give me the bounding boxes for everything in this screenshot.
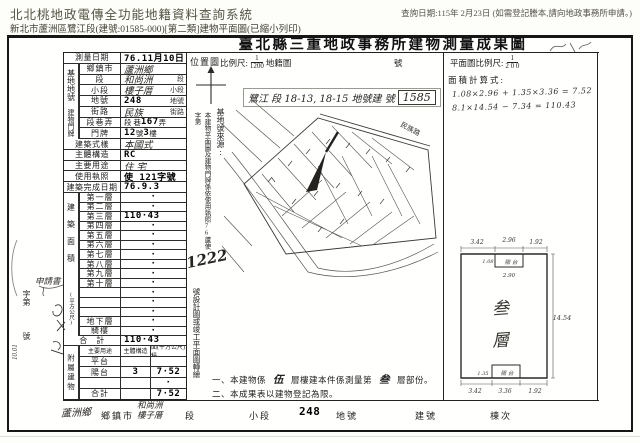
row-label: 小段 (79, 85, 121, 95)
table-row: 小段樓子厝小段 (64, 85, 186, 96)
table-row: · (64, 298, 186, 308)
footer-unit-label: 棟次 (490, 409, 512, 422)
derivation-note: 本建物平面圖及建物門牌係依使用執照76蘆使字第 (191, 112, 211, 252)
value-text: · (151, 241, 157, 250)
row-label: 第一層 (79, 193, 121, 202)
row-value: · (121, 269, 186, 278)
annex-use-cell: 陽台 (79, 367, 121, 377)
row-label: 第六層 (79, 241, 121, 250)
survey-result-title: 臺北縣三重地政事務所建物測量成果圖 (209, 37, 557, 52)
value-text: 段 巷 (124, 118, 141, 128)
sheet-number-label: 號 (394, 57, 403, 69)
row-label: 第九層 (79, 269, 121, 278)
dim-top-left: 3.42 (470, 239, 484, 246)
value-text: RC (124, 150, 136, 160)
document-subtitle: 新北市蘆洲區鷺江段(建號:01585-000)[第二類]建物平面圖(已縮小列印) (10, 21, 301, 35)
value-text: 使 121字號 (124, 171, 176, 181)
table-row: · (64, 288, 186, 298)
row-value: RC (121, 150, 186, 160)
row-value: · (121, 260, 186, 269)
value-text: 和尚洲 (124, 75, 153, 85)
table-row: 第八層· (64, 260, 186, 270)
row-value: · (121, 327, 186, 336)
query-date-note: 查詢日期:115年 2月23日 (如需登記謄本,請向地政事務所申請。) (401, 7, 632, 19)
row-value: · (121, 193, 186, 202)
annex-area-cell: · (151, 378, 186, 388)
row-value: 民族街路 (121, 107, 186, 117)
floors-total-stamp: 伍 (273, 374, 284, 386)
unit-suffix: 小段 (170, 85, 186, 95)
annex-header-cell: 主要用途 (79, 346, 121, 356)
value-text: · (151, 250, 157, 259)
annex-row: 平台 (64, 357, 186, 368)
annex-row: 陽台37·52 (64, 367, 186, 378)
row-label: 段巷弄 (79, 118, 121, 128)
row-label: 第五層 (79, 231, 121, 240)
row-value: 110·43 (121, 336, 186, 345)
table-row: 第五層· (64, 231, 186, 241)
annex-area-cell: 7·52 (151, 389, 186, 399)
value-text: · (151, 260, 157, 269)
mid-right-divider (443, 52, 444, 400)
value-text: 3 (133, 367, 139, 377)
row-label: 主要用途 (64, 161, 121, 171)
annex-structure-cell (121, 357, 151, 367)
value-text: 住 宅 (124, 161, 146, 171)
table-row: 第七層· (64, 250, 186, 260)
floor-label-char2: 層 (491, 330, 511, 351)
row-value: · (121, 250, 186, 259)
table-row: 地下層· (64, 317, 186, 327)
value-text: 248 (124, 96, 142, 106)
table-row: 測量日期76.11月10日 (64, 53, 186, 64)
annex-row: 合計7·52 (64, 389, 186, 400)
plan-scale-fraction: 1 2 0 0 (505, 55, 519, 70)
row-label: 街路 (79, 107, 121, 117)
dim-top-right: 1.92 (529, 239, 543, 246)
value-text: 110·43 (124, 336, 160, 345)
annex-row: · (64, 378, 186, 389)
group-label-door: 建物門牌 (64, 107, 79, 139)
row-value: · (121, 317, 186, 326)
row-label: 第七層 (79, 250, 121, 259)
value-text: 號 (136, 128, 144, 138)
balcony-bottom-label: 陽 台 (501, 370, 514, 377)
margin-curve-mark (9, 238, 19, 298)
row-label: 主體構造 (64, 150, 121, 160)
value-text: · (151, 193, 157, 202)
row-value: 本國式 (121, 139, 186, 149)
row-value: 248地號 (121, 96, 186, 106)
value-text: 110·43 (124, 212, 160, 221)
table-row: 第十層· (64, 279, 186, 289)
value-text: · (151, 279, 157, 288)
footer-township-value: 蘆洲鄉 (61, 403, 92, 420)
table-row: 鄉鎮市蘆洲鄉 (64, 64, 186, 75)
value-text: 7·52 (157, 389, 181, 399)
note-2: 二、本成果表以建物登記為限。 (212, 388, 338, 400)
table-row: 合 計110·43 (64, 336, 186, 346)
dim-bot-right: 1.92 (528, 388, 542, 395)
value-text: · (151, 288, 157, 297)
row-value: 住 宅 (121, 161, 186, 171)
table-row: · (64, 308, 186, 318)
row-label: 地下層 (79, 317, 121, 326)
row-value: 使 121字號 (121, 171, 186, 181)
group-label-site: 基地地號 (64, 64, 79, 107)
dim-notch-height: 1.08 (482, 259, 493, 265)
dim-top-mid: 2.96 (501, 237, 516, 244)
table-row: 第九層· (64, 269, 186, 279)
area-calc-line-1: 1.08×2.96 + 1.35×3.36 = 7.52 (452, 86, 592, 99)
row-value: · (121, 298, 186, 307)
annex-structure-cell: 3 (121, 367, 151, 377)
scale-fraction: 1 1200 (250, 55, 264, 70)
dim-notch-width: 2.90 (502, 273, 516, 279)
map-scale: 比例尺: 1 1200 地籍圖 (220, 55, 291, 70)
row-label: 鄉鎮市 (79, 64, 121, 74)
value-text: 12 (124, 128, 136, 138)
row-value: 76.9.3 (121, 182, 186, 192)
footer-section-value: 和尚洲 樓子厝 (137, 402, 163, 421)
rotated-margin-note: 10.01 (11, 344, 19, 360)
row-value: · (121, 241, 186, 250)
row-value: · (121, 231, 186, 240)
row-value: · (121, 203, 186, 212)
table-row: 建築完成日期76.9.3 (64, 182, 186, 193)
plan-scale: 平面圖比例尺: 1 2 0 0 (450, 55, 521, 70)
value-text: 本國式 (124, 139, 153, 149)
value-text: 76.9.3 (124, 182, 160, 192)
row-label: 段 (79, 75, 121, 85)
value-text: 7·52 (157, 367, 181, 377)
table-row: 主體構造RC (64, 150, 186, 161)
row-value: 和尚洲段 (121, 75, 186, 85)
floor-label-char1: 叁 (491, 298, 511, 319)
footer-parcel-label: 地號 (336, 409, 358, 422)
row-label: 建築式樣 (64, 139, 121, 149)
dim-bot-mid: 3.36 (498, 388, 512, 395)
row-value: · (121, 288, 186, 297)
annex-use-cell (79, 378, 121, 388)
row-value: · (121, 279, 186, 288)
unit-suffix: 街路 (170, 107, 186, 117)
value-text: · (151, 231, 157, 240)
footer-section-label: 段 (185, 409, 196, 422)
document-scan: 臺北縣三重地政事務所建物測量成果圖 測量日期76.11月10日鄉鎮市蘆洲鄉段和尚… (7, 35, 633, 432)
row-label: 騎樓 (79, 327, 121, 336)
table-row: 第三層110·43 (64, 212, 186, 222)
annex-use-cell: 合計 (79, 389, 121, 399)
dim-bot-notch: 1.35 (477, 371, 488, 377)
value-text: 樓子厝 (124, 85, 153, 95)
row-value: · (121, 308, 186, 317)
row-value: 樓子厝小段 (121, 85, 186, 95)
footer-building-label: 建號 (415, 409, 437, 422)
dim-bot-left: 3.42 (468, 388, 482, 395)
value-text: · (151, 317, 157, 326)
row-value: 段 巷167弄 (121, 118, 186, 128)
table-row: 主要用途住 宅 (64, 161, 186, 172)
row-label: 第八層 (79, 260, 121, 269)
floor-plan-drawing: 3.42 2.96 1.92 1.08 2.90 陽 台 14.54 1.35 … (447, 228, 599, 400)
row-label: 地號 (79, 96, 121, 106)
annex-use-cell: 平台 (79, 357, 121, 367)
footer-township-label: 鄉鎮市 (101, 409, 134, 422)
road-name-label: 民族路 (399, 120, 422, 138)
row-label (79, 308, 121, 317)
margin-scribbles (29, 284, 79, 364)
annex-area-cell: 7·52 (151, 367, 186, 377)
building-info-table: 測量日期76.11月10日鄉鎮市蘆洲鄉段和尚洲段小段樓子厝小段地號248地號街路… (63, 52, 187, 400)
row-value: 蘆洲鄉 (121, 64, 186, 74)
table-row: 地號248地號 (64, 96, 186, 107)
table-row: 第四層· (64, 222, 186, 232)
unit-suffix: 地號 (170, 96, 186, 106)
footer-subsection-label: 小段 (249, 409, 271, 422)
value-text: 167 (141, 118, 159, 128)
annex-structure-cell (121, 378, 151, 388)
dim-right: 14.54 (553, 314, 572, 322)
land-registry-query-screen: { "colors": {"paper":"#ffffff","ink":"#1… (0, 0, 640, 443)
hao-label: 號 (21, 332, 32, 340)
value-text: 蘆洲鄉 (124, 64, 153, 74)
row-label: 第三層 (79, 212, 121, 221)
row-label: 第十層 (79, 279, 121, 288)
note-1: 一、本建物係伍層樓建本件係測量第叁層部份。 (212, 372, 433, 387)
row-label: 測量日期 (64, 53, 121, 63)
unit-suffix: 段 (177, 75, 186, 85)
zidi-label: 字第 (21, 290, 32, 306)
row-value: · (121, 222, 186, 231)
value-text: 樓 (149, 128, 157, 138)
row-label: 使用執照 (64, 171, 121, 181)
row-label (79, 298, 121, 307)
row-value: 110·43 (121, 212, 186, 221)
value-text: · (151, 327, 157, 336)
value-text: · (151, 203, 157, 212)
table-row: 騎樓· (64, 327, 186, 337)
value-text: 弄 (159, 118, 167, 128)
surveyed-floor-stamp: 叁 (379, 374, 390, 386)
row-label: 第四層 (79, 222, 121, 231)
row-label: 第二層 (79, 203, 121, 212)
value-text: · (151, 298, 157, 307)
annex-structure-cell (121, 389, 151, 399)
table-row: 建築式樣本國式 (64, 139, 186, 150)
footer-parcel-value: 248 (299, 405, 320, 418)
table-row: 段和尚洲段 (64, 75, 186, 86)
area-calc-label: 面積計算式: (448, 74, 505, 86)
row-value: 12號 3 樓 (121, 128, 186, 138)
row-value: 76.11月10日 (121, 53, 186, 63)
area-calc-line-2: 8.1×14.54 − 7.34 = 110.43 (452, 100, 576, 112)
cadastral-map-sketch: 民族路 (222, 96, 442, 294)
balcony-top-label: 陽 台 (505, 259, 518, 266)
table-row: 使用執照使 121字號 (64, 171, 186, 182)
value-text: · (151, 222, 157, 231)
table-row: 第六層· (64, 241, 186, 251)
value-text: 民族 (124, 107, 143, 117)
annex-header-row: 主要用途主體構造面(平方公尺)積 (64, 346, 186, 357)
value-text: 76.11月10日 (124, 53, 184, 63)
annex-header-cell: 主體構造 (121, 346, 151, 356)
table-row: 門牌12號 3 樓 (64, 128, 186, 139)
row-label: 建築完成日期 (64, 182, 121, 192)
table-row: 第二層· (64, 203, 186, 213)
value-text: · (151, 308, 157, 317)
row-label: 門牌 (79, 128, 121, 138)
derivation-note-2: 號設計圖或竣工平面圖轉繪 (191, 288, 202, 396)
table-row: 段巷弄段 巷167弄 (64, 118, 186, 129)
table-row: 街路民族街路 (64, 107, 186, 118)
page-edge-line (0, 436, 640, 437)
value-text: · (166, 378, 172, 388)
annex-header-cell: 面(平方公尺)積 (151, 346, 186, 356)
value-text: · (151, 269, 157, 278)
row-label (79, 288, 121, 297)
annex-area-cell (151, 357, 186, 367)
table-row: 第一層· (64, 193, 186, 203)
